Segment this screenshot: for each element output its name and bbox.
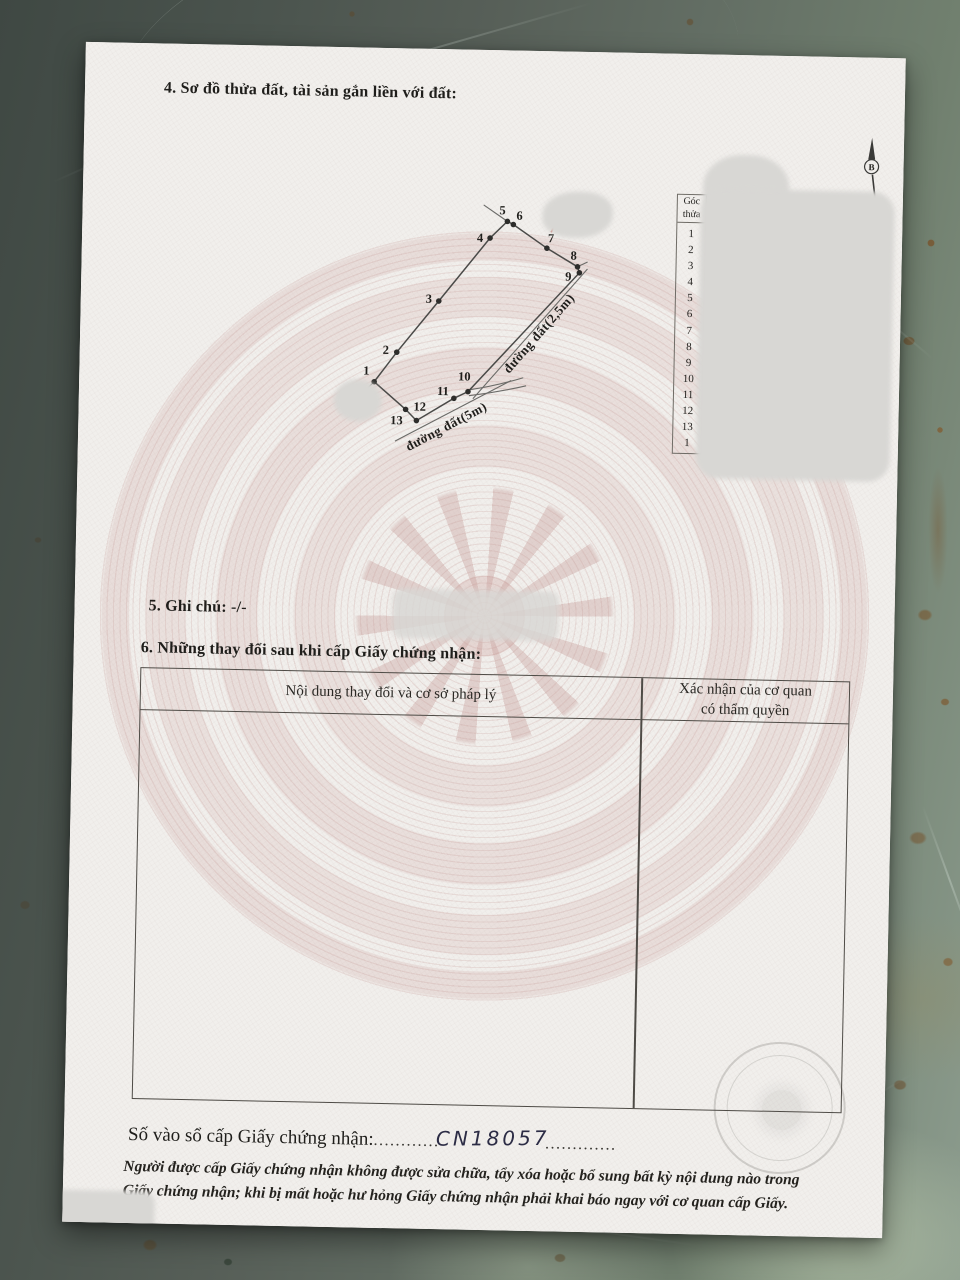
- changes-table-divider: [633, 678, 643, 1108]
- metal-table-surface: 4. Sơ đồ thửa đất, tài sản gắn liền với …: [0, 0, 960, 1280]
- parcel-point-label: 6: [516, 209, 523, 223]
- section5-title: 5. Ghi chú: -/-: [148, 597, 246, 617]
- parcel-point-label: 13: [390, 413, 403, 427]
- parcel-point-label: 2: [383, 343, 390, 357]
- parcel-point-label: 12: [413, 400, 426, 414]
- parcel-point-label: 5: [499, 203, 506, 217]
- changes-table-col2-header: Xác nhận của cơ quan có thẩm quyền: [641, 678, 849, 724]
- parcel-point-label: 10: [458, 369, 471, 383]
- section4-title: 4. Sơ đồ thửa đất, tài sản gắn liền với …: [164, 79, 457, 103]
- parcel-point-label: 9: [565, 270, 572, 284]
- certificate-page: 4. Sơ đồ thửa đất, tài sản gắn liền với …: [62, 42, 906, 1238]
- parcel-point-label: 8: [570, 249, 577, 263]
- road-curve: [469, 385, 526, 397]
- serial-number-line: Số vào sổ cấp Giấy chứng nhận:..........…: [128, 1121, 617, 1156]
- changes-table: Nội dung thay đổi và cơ sở pháp lý Xác n…: [132, 667, 851, 1113]
- dotted-line: .............: [545, 1135, 617, 1154]
- section6-title: 6. Những thay đổi sau khi cấp Giấy chứng…: [141, 639, 482, 664]
- surface-scratch: [922, 805, 960, 956]
- serial-label: Số vào sổ cấp Giấy chứng nhận:: [128, 1124, 374, 1151]
- changes-table-col2-line: có thẩm quyền: [701, 700, 790, 721]
- changes-table-col2-line: Xác nhận của cơ quan: [679, 680, 812, 702]
- parcel-point-label: 3: [426, 292, 433, 306]
- road-25-label: đường đất(2,5m): [500, 290, 577, 376]
- parcel-point-label: 1: [363, 364, 370, 378]
- north-arrow-icon: B: [864, 138, 879, 198]
- redaction-blob: [62, 1189, 155, 1238]
- changes-table-col1-header: Nội dung thay đổi và cơ sở pháp lý: [141, 668, 642, 720]
- redaction-blob: [392, 588, 559, 641]
- north-label: B: [868, 162, 874, 172]
- redaction-blob: [695, 188, 895, 482]
- serial-number-handwritten: CN18057: [436, 1126, 550, 1151]
- dotted-line: ............: [373, 1132, 439, 1151]
- parcel-point-label: 4: [477, 231, 484, 245]
- parcel-point-label: 11: [437, 384, 449, 398]
